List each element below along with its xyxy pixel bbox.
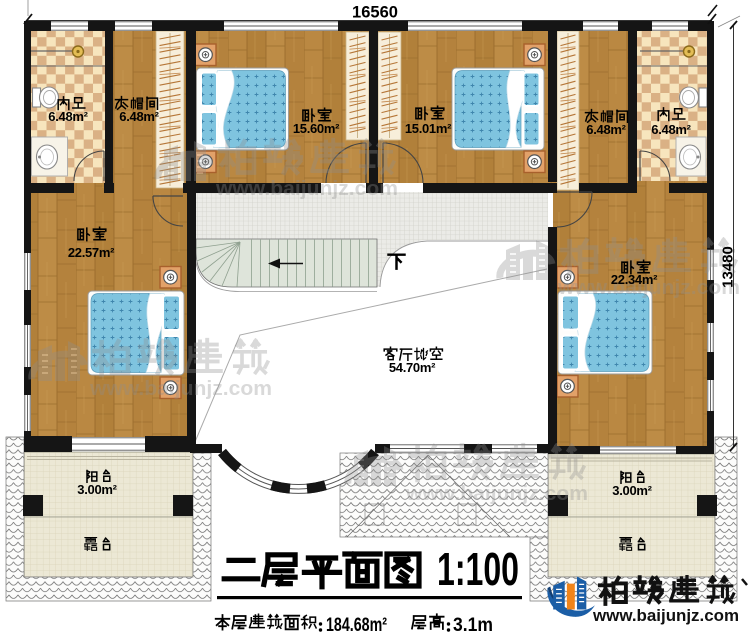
svg-text:16560: 16560 (352, 4, 398, 22)
svg-text:15.01m²: 15.01m² (405, 121, 452, 136)
svg-text:www.baijunjz.com: www.baijunjz.com (89, 378, 272, 400)
svg-text:15.60m²: 15.60m² (293, 121, 340, 136)
svg-text:22.57m²: 22.57m² (68, 245, 115, 260)
svg-text:6.48m²: 6.48m² (48, 109, 88, 124)
svg-text:22.34m²: 22.34m² (611, 272, 658, 287)
svg-text:6.48m²: 6.48m² (651, 122, 691, 137)
svg-text:6.48m²: 6.48m² (119, 109, 159, 124)
svg-text:www.baijunjz.com: www.baijunjz.com (405, 483, 588, 505)
svg-text:3.1m: 3.1m (453, 615, 493, 636)
svg-text:1:100: 1:100 (437, 543, 519, 595)
svg-text:54.70m²: 54.70m² (389, 360, 436, 375)
svg-text:3.00m²: 3.00m² (77, 482, 117, 497)
svg-text:www.baijunjz.com: www.baijunjz.com (215, 178, 398, 200)
svg-text:184.68m²: 184.68m² (326, 615, 387, 636)
svg-text:www.baijunjz.com: www.baijunjz.com (592, 606, 739, 625)
svg-text:3.00m²: 3.00m² (612, 483, 652, 498)
svg-text:6.48m²: 6.48m² (586, 122, 626, 137)
